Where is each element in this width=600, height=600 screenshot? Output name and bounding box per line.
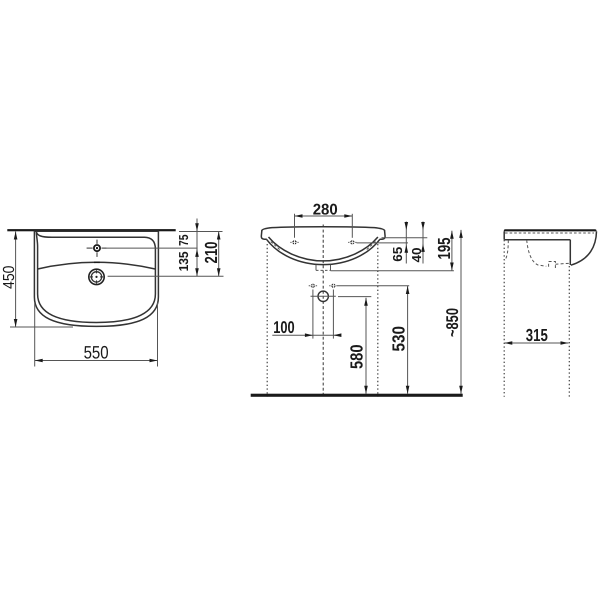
svg-text:530: 530 — [389, 326, 409, 352]
svg-text:100: 100 — [273, 318, 294, 337]
svg-text:580: 580 — [347, 344, 367, 369]
svg-text:450: 450 — [1, 265, 18, 289]
svg-text:65: 65 — [390, 247, 405, 262]
svg-text:195: 195 — [434, 237, 454, 259]
svg-text:280: 280 — [313, 201, 338, 218]
svg-text:40: 40 — [409, 248, 424, 263]
svg-text:210: 210 — [201, 241, 221, 263]
svg-text:135: 135 — [176, 251, 191, 271]
svg-text:315: 315 — [526, 325, 548, 345]
svg-text:550: 550 — [84, 343, 109, 363]
svg-text:~850: ~850 — [443, 308, 462, 337]
svg-text:75: 75 — [176, 235, 191, 247]
